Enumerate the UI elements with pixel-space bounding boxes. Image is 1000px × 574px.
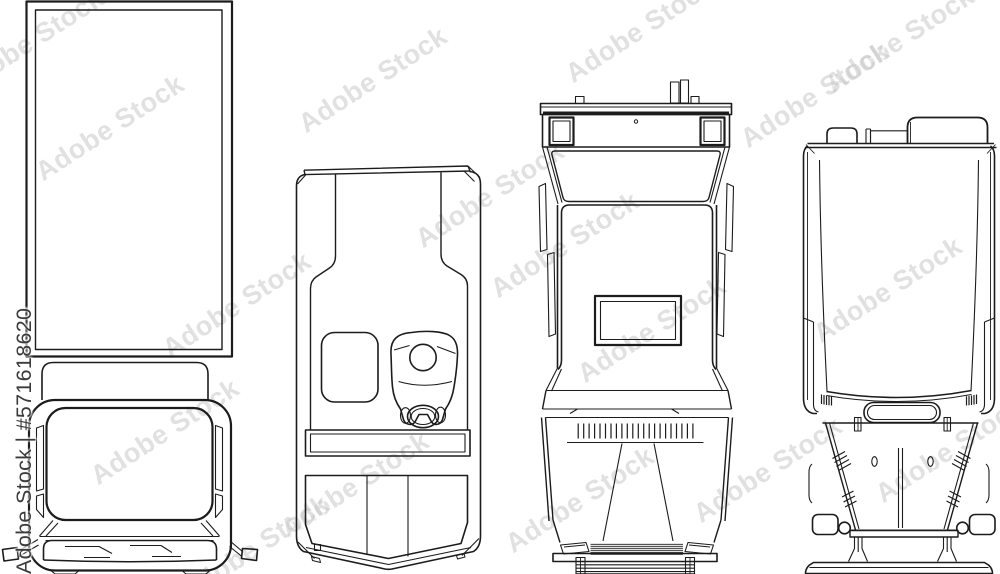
arcade-machine-rear-view-outline-drawing — [804, 118, 997, 574]
signage-kiosk-front-outline-drawing — [3, 2, 258, 574]
stock-image-canvas: Adobe Stock Adobe Stock Adobe Stock Adob… — [0, 0, 1000, 574]
adobe-stock-asset-id: Adobe Stock | #571618620 — [12, 308, 37, 574]
player-figure-top-view — [391, 331, 458, 427]
driving-machine-top-view-outline-drawing — [297, 166, 481, 569]
outline-illustrations — [0, 0, 1000, 574]
arcade-cabinet-top-view-outline-drawing — [539, 80, 734, 574]
